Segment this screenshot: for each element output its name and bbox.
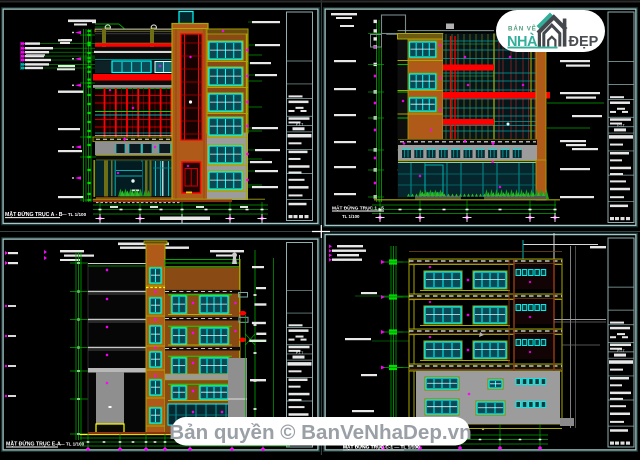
svg-text:P.T.T: P.T.T: [296, 123, 303, 127]
svg-text:MẶT ĐỨNG TRỤC A - B: MẶT ĐỨNG TRỤC A - B: [5, 211, 63, 218]
svg-text:P.T.T: P.T.T: [617, 124, 624, 128]
svg-text:TL 1/100: TL 1/100: [342, 214, 360, 219]
svg-text:ĐẸP: ĐẸP: [569, 34, 599, 50]
svg-text:— TL 1/100: — TL 1/100: [60, 442, 85, 447]
svg-text:MẶT ĐỨNG TRỤC E-A: MẶT ĐỨNG TRỤC E-A: [6, 441, 61, 448]
svg-text:P.T.T: P.T.T: [296, 351, 303, 355]
svg-text:BẢN VẼ: BẢN VẼ: [508, 26, 537, 33]
svg-text:— TL 1/100: — TL 1/100: [62, 212, 87, 217]
svg-text:MẶT ĐỨNG TRỤC C-1 — TL 1/100: MẶT ĐỨNG TRỤC C-1 — TL 1/100: [343, 444, 420, 451]
svg-text:MẶT ĐỨNG TRỤC 1 - 5: MẶT ĐỨNG TRỤC 1 - 5: [332, 205, 384, 212]
svg-text:P.T.T: P.T.T: [617, 349, 624, 353]
svg-text:Bản quyền © BanVeNhaDep.vn: Bản quyền © BanVeNhaDep.vn: [169, 421, 471, 444]
